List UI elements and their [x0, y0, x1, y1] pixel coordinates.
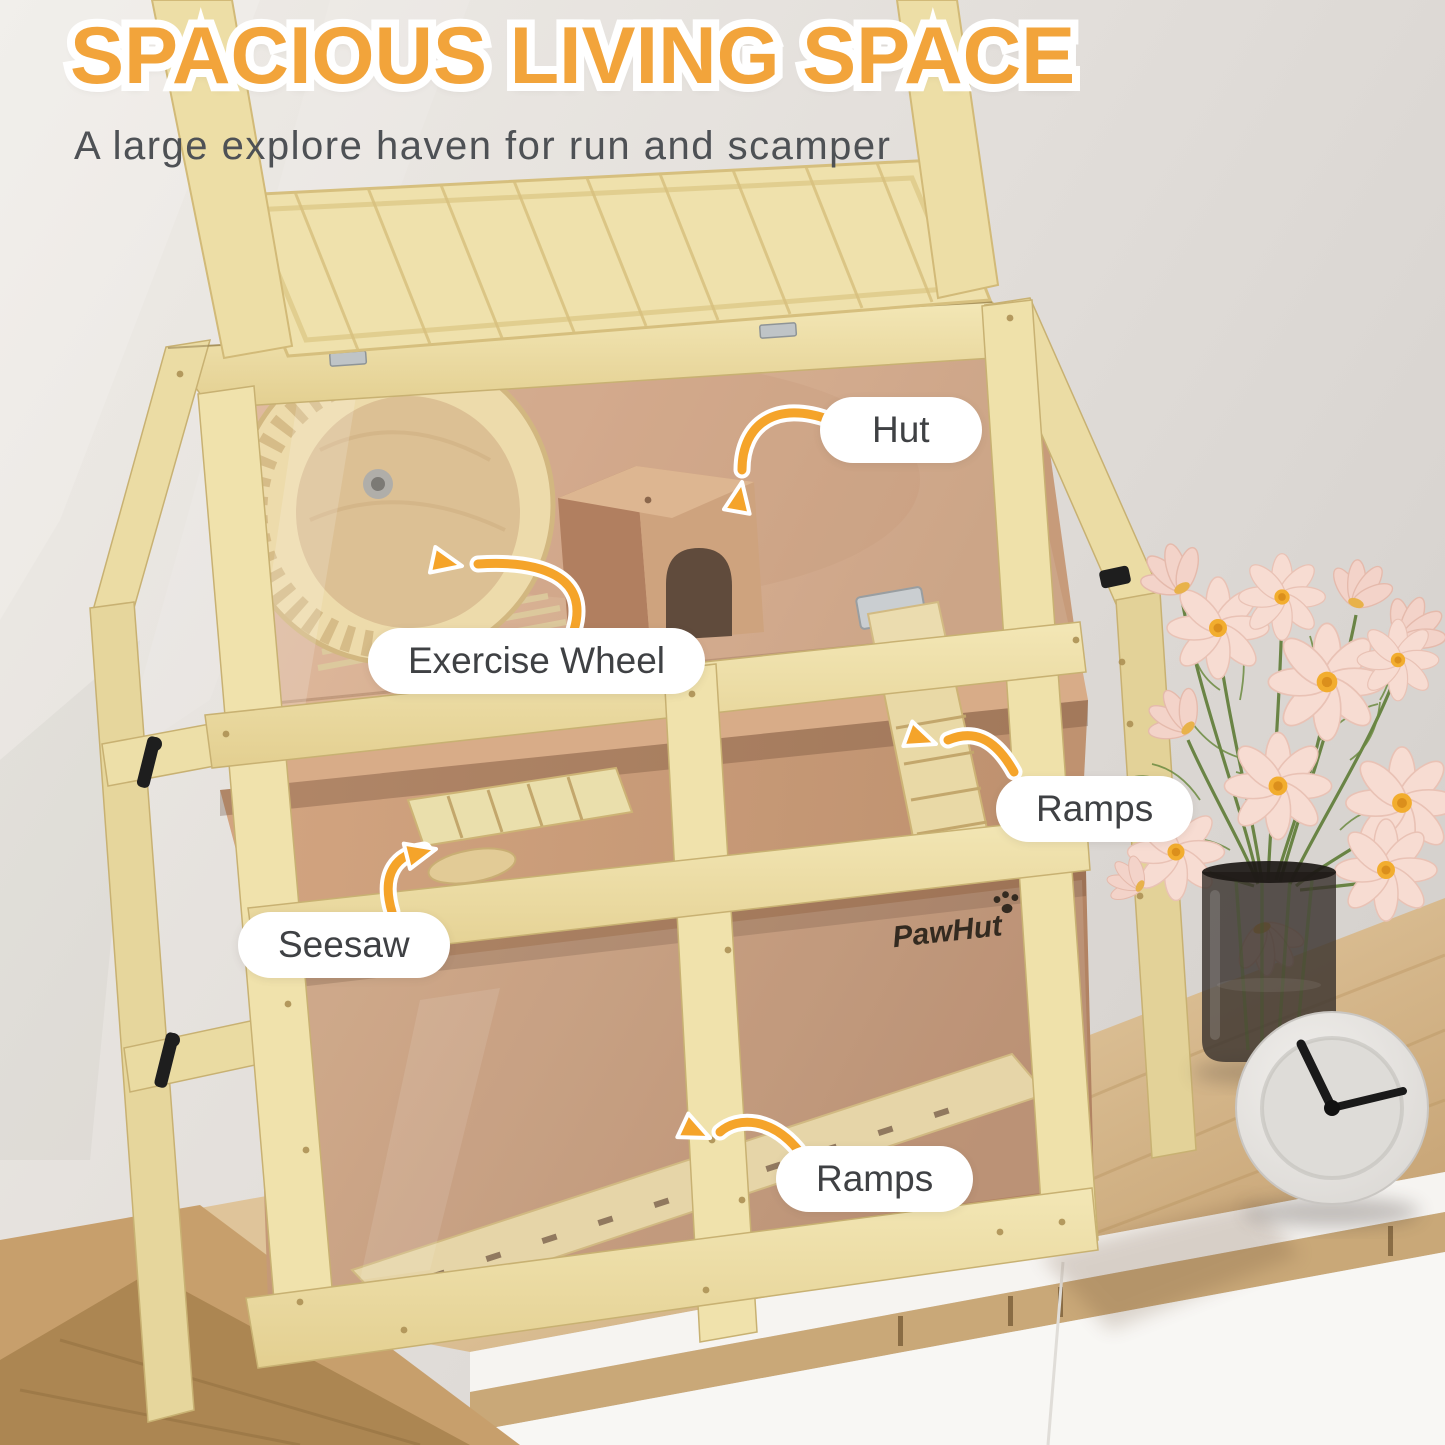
vase-highlight [1210, 890, 1220, 1040]
callout-seesaw: Seesaw [238, 912, 450, 978]
callout-ramps-lower: Ramps [776, 1146, 973, 1212]
callout-exercise-wheel: Exercise Wheel [368, 628, 705, 694]
page-title-text: SPACIOUS LIVING SPACE [70, 11, 1075, 101]
product-infographic: PawHut [0, 0, 1445, 1445]
callout-hut: Hut [820, 397, 982, 463]
page-title: SPACIOUS LIVING SPACE SPACIOUS LIVING SP… [70, 14, 1190, 99]
vase-mouth [1202, 861, 1336, 883]
page-subtitle: A large explore haven for run and scampe… [74, 124, 892, 169]
header: SPACIOUS LIVING SPACE SPACIOUS LIVING SP… [70, 14, 1190, 99]
callout-ramps-upper: Ramps [996, 776, 1193, 842]
water-line [1217, 978, 1321, 992]
hinge-icon [760, 323, 797, 338]
scene-photo: PawHut [0, 0, 1445, 1445]
clock-hub [1324, 1100, 1340, 1116]
